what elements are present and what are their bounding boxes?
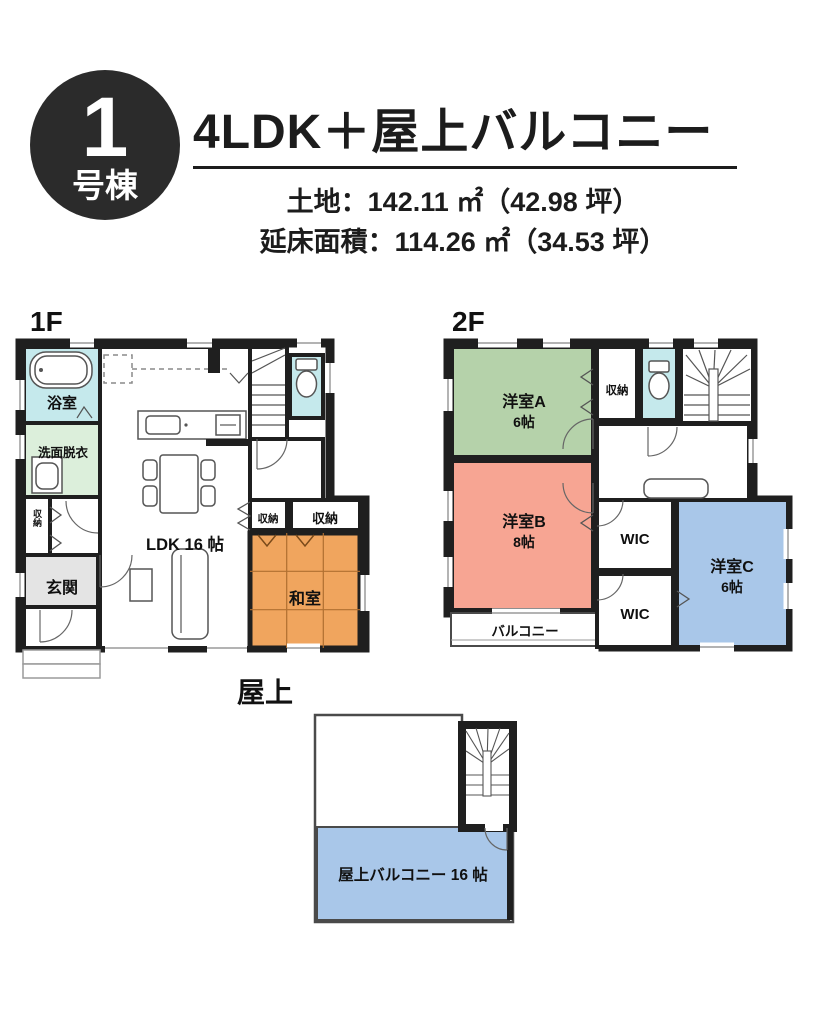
room-label-bath: 浴室	[47, 394, 77, 412]
sink-icon	[146, 416, 180, 434]
side-table-icon	[130, 569, 152, 601]
room-label-balcony-2f: バルコニー	[491, 624, 558, 639]
room-size-b: 8帖	[513, 534, 535, 550]
floor-plan-2f: 洋室A 6帖 収納 洋室B 8帖 WIC WIC 洋室C 6帖 バルコニー	[442, 337, 799, 654]
floor-plan-1f: 浴室 洗面脱衣 収納 玄関 LDK 16 帖 収納 収納 和室	[14, 337, 376, 687]
room-label-wic-lower: WIC	[620, 606, 649, 623]
roof-balcony-wall	[507, 827, 513, 920]
room-label-tatami: 和室	[289, 589, 321, 608]
room-label-closet-a: 収納	[258, 512, 279, 525]
floor-2f-heading: 2F	[452, 308, 485, 336]
land-area-text: 土地：142.11 ㎡（42.98 坪）	[188, 180, 738, 219]
room-label-b: 洋室B	[502, 512, 546, 531]
porch-steps	[23, 650, 100, 678]
room-label-closet-b: 収納	[312, 511, 338, 526]
room-label-hall-closet: 収納	[32, 508, 43, 528]
room-label-washroom: 洗面脱衣	[38, 445, 89, 460]
room-label-ldk: LDK 16 帖	[146, 534, 224, 554]
toilet-icon-2f	[649, 361, 669, 399]
room-label-wic-upper: WIC	[620, 531, 649, 548]
floor-area-text: 延床面積：114.26 ㎡（34.53 坪）	[188, 220, 738, 259]
floor-1f-heading: 1F	[30, 308, 63, 336]
room-label-closet-2f: 収納	[606, 383, 629, 397]
chair-icon	[143, 486, 157, 506]
chair-icon	[143, 460, 157, 480]
badge-number: 1	[82, 88, 129, 168]
room-size-a: 6帖	[513, 414, 535, 430]
room-closet-2f	[597, 347, 637, 420]
room-porch	[24, 607, 98, 648]
bathtub-icon	[30, 352, 92, 388]
toilet-icon-1f	[296, 359, 317, 397]
title-underline	[193, 166, 737, 169]
sofa-icon	[172, 549, 208, 639]
chair-icon	[201, 460, 215, 480]
washing-machine-icon	[32, 457, 62, 493]
floor-plan-roof: 屋上バルコニー 16 帖	[307, 707, 524, 929]
door-gap	[485, 823, 503, 831]
chair-icon	[201, 486, 215, 506]
room-label-entrance: 玄関	[46, 578, 78, 597]
floorplan-sheet: 1 号棟 4LDK＋屋上バルコニー 土地：142.11 ㎡（42.98 坪） 延…	[0, 0, 819, 1024]
badge-label: 号棟	[72, 169, 138, 202]
room-label-c: 洋室C	[710, 557, 754, 576]
room-size-c: 6帖	[721, 579, 743, 595]
page-title: 4LDK＋屋上バルコニー	[193, 92, 741, 162]
building-badge: 1 号棟	[30, 70, 180, 220]
room-label-a: 洋室A	[502, 392, 546, 411]
room-hall-upper-right	[250, 439, 323, 500]
room-label-roof-balcony: 屋上バルコニー 16 帖	[338, 865, 488, 884]
handrail-icon	[644, 479, 708, 498]
